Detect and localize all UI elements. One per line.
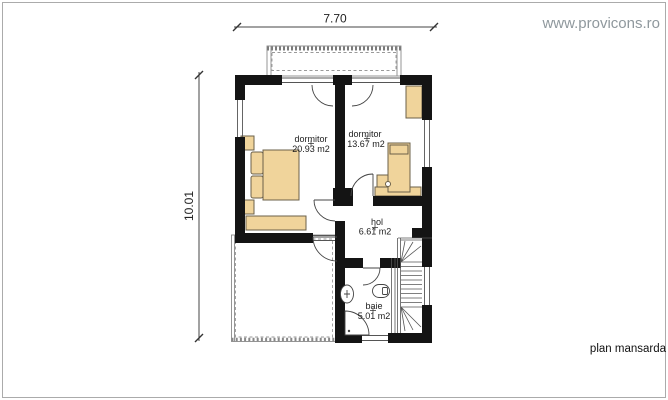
pillow bbox=[251, 152, 263, 174]
bathroom-area: 5.01 m2 bbox=[358, 311, 391, 321]
pillow bbox=[390, 145, 408, 154]
toilet-tank bbox=[383, 288, 388, 295]
dimension-top-value: 7.70 bbox=[323, 12, 347, 26]
shower-drain bbox=[348, 330, 350, 332]
window-left bbox=[238, 100, 243, 137]
bedroom2-door-swing bbox=[351, 174, 373, 196]
balcony bbox=[267, 46, 401, 76]
dimension-left-value: 10.01 bbox=[182, 191, 196, 221]
dimension-top: 7.70 bbox=[233, 12, 438, 32]
balcony-door-frame bbox=[282, 78, 333, 83]
balcony-door-left-swing bbox=[312, 85, 333, 106]
window-right-stairs bbox=[425, 267, 430, 305]
pillow bbox=[251, 176, 263, 198]
window-right-bedroom bbox=[425, 120, 430, 167]
stair-stringer bbox=[398, 238, 401, 333]
balcony-door-frame bbox=[352, 78, 400, 83]
doors bbox=[312, 85, 380, 285]
bedroom1-door-swing bbox=[314, 200, 335, 221]
dimension-left: 10.01 bbox=[182, 71, 203, 342]
double-bed bbox=[241, 136, 299, 214]
bedroom2-label: dormitor bbox=[348, 129, 381, 139]
balcony-door-right-swing bbox=[352, 85, 373, 106]
plan-title: plan mansarda bbox=[590, 343, 667, 355]
stair-winders-top bbox=[401, 241, 421, 262]
site-watermark: www.provicons.ro bbox=[541, 15, 660, 32]
bathroom-stair-partition bbox=[392, 258, 396, 333]
dresser bbox=[246, 216, 306, 230]
terrace bbox=[232, 235, 338, 342]
stair-winders-bottom bbox=[401, 307, 421, 331]
bedroom2-area: 13.67 m2 bbox=[347, 139, 385, 149]
floorplan-drawing: 7.70 10.01 dormitor 20.93 m2 dormitor 13… bbox=[0, 0, 668, 400]
stair-treads bbox=[401, 262, 422, 307]
wardrobe bbox=[406, 86, 422, 118]
lamp bbox=[386, 182, 391, 187]
bathroom-label: baie bbox=[365, 301, 382, 311]
floorplan-page: 7.70 10.01 dormitor 20.93 m2 dormitor 13… bbox=[0, 0, 668, 400]
window-bathroom bbox=[362, 336, 388, 341]
terrace-door-frame bbox=[313, 236, 335, 241]
single-bed bbox=[375, 143, 421, 196]
bathroom-door-swing bbox=[363, 268, 380, 285]
hall-label: hol bbox=[371, 217, 383, 227]
